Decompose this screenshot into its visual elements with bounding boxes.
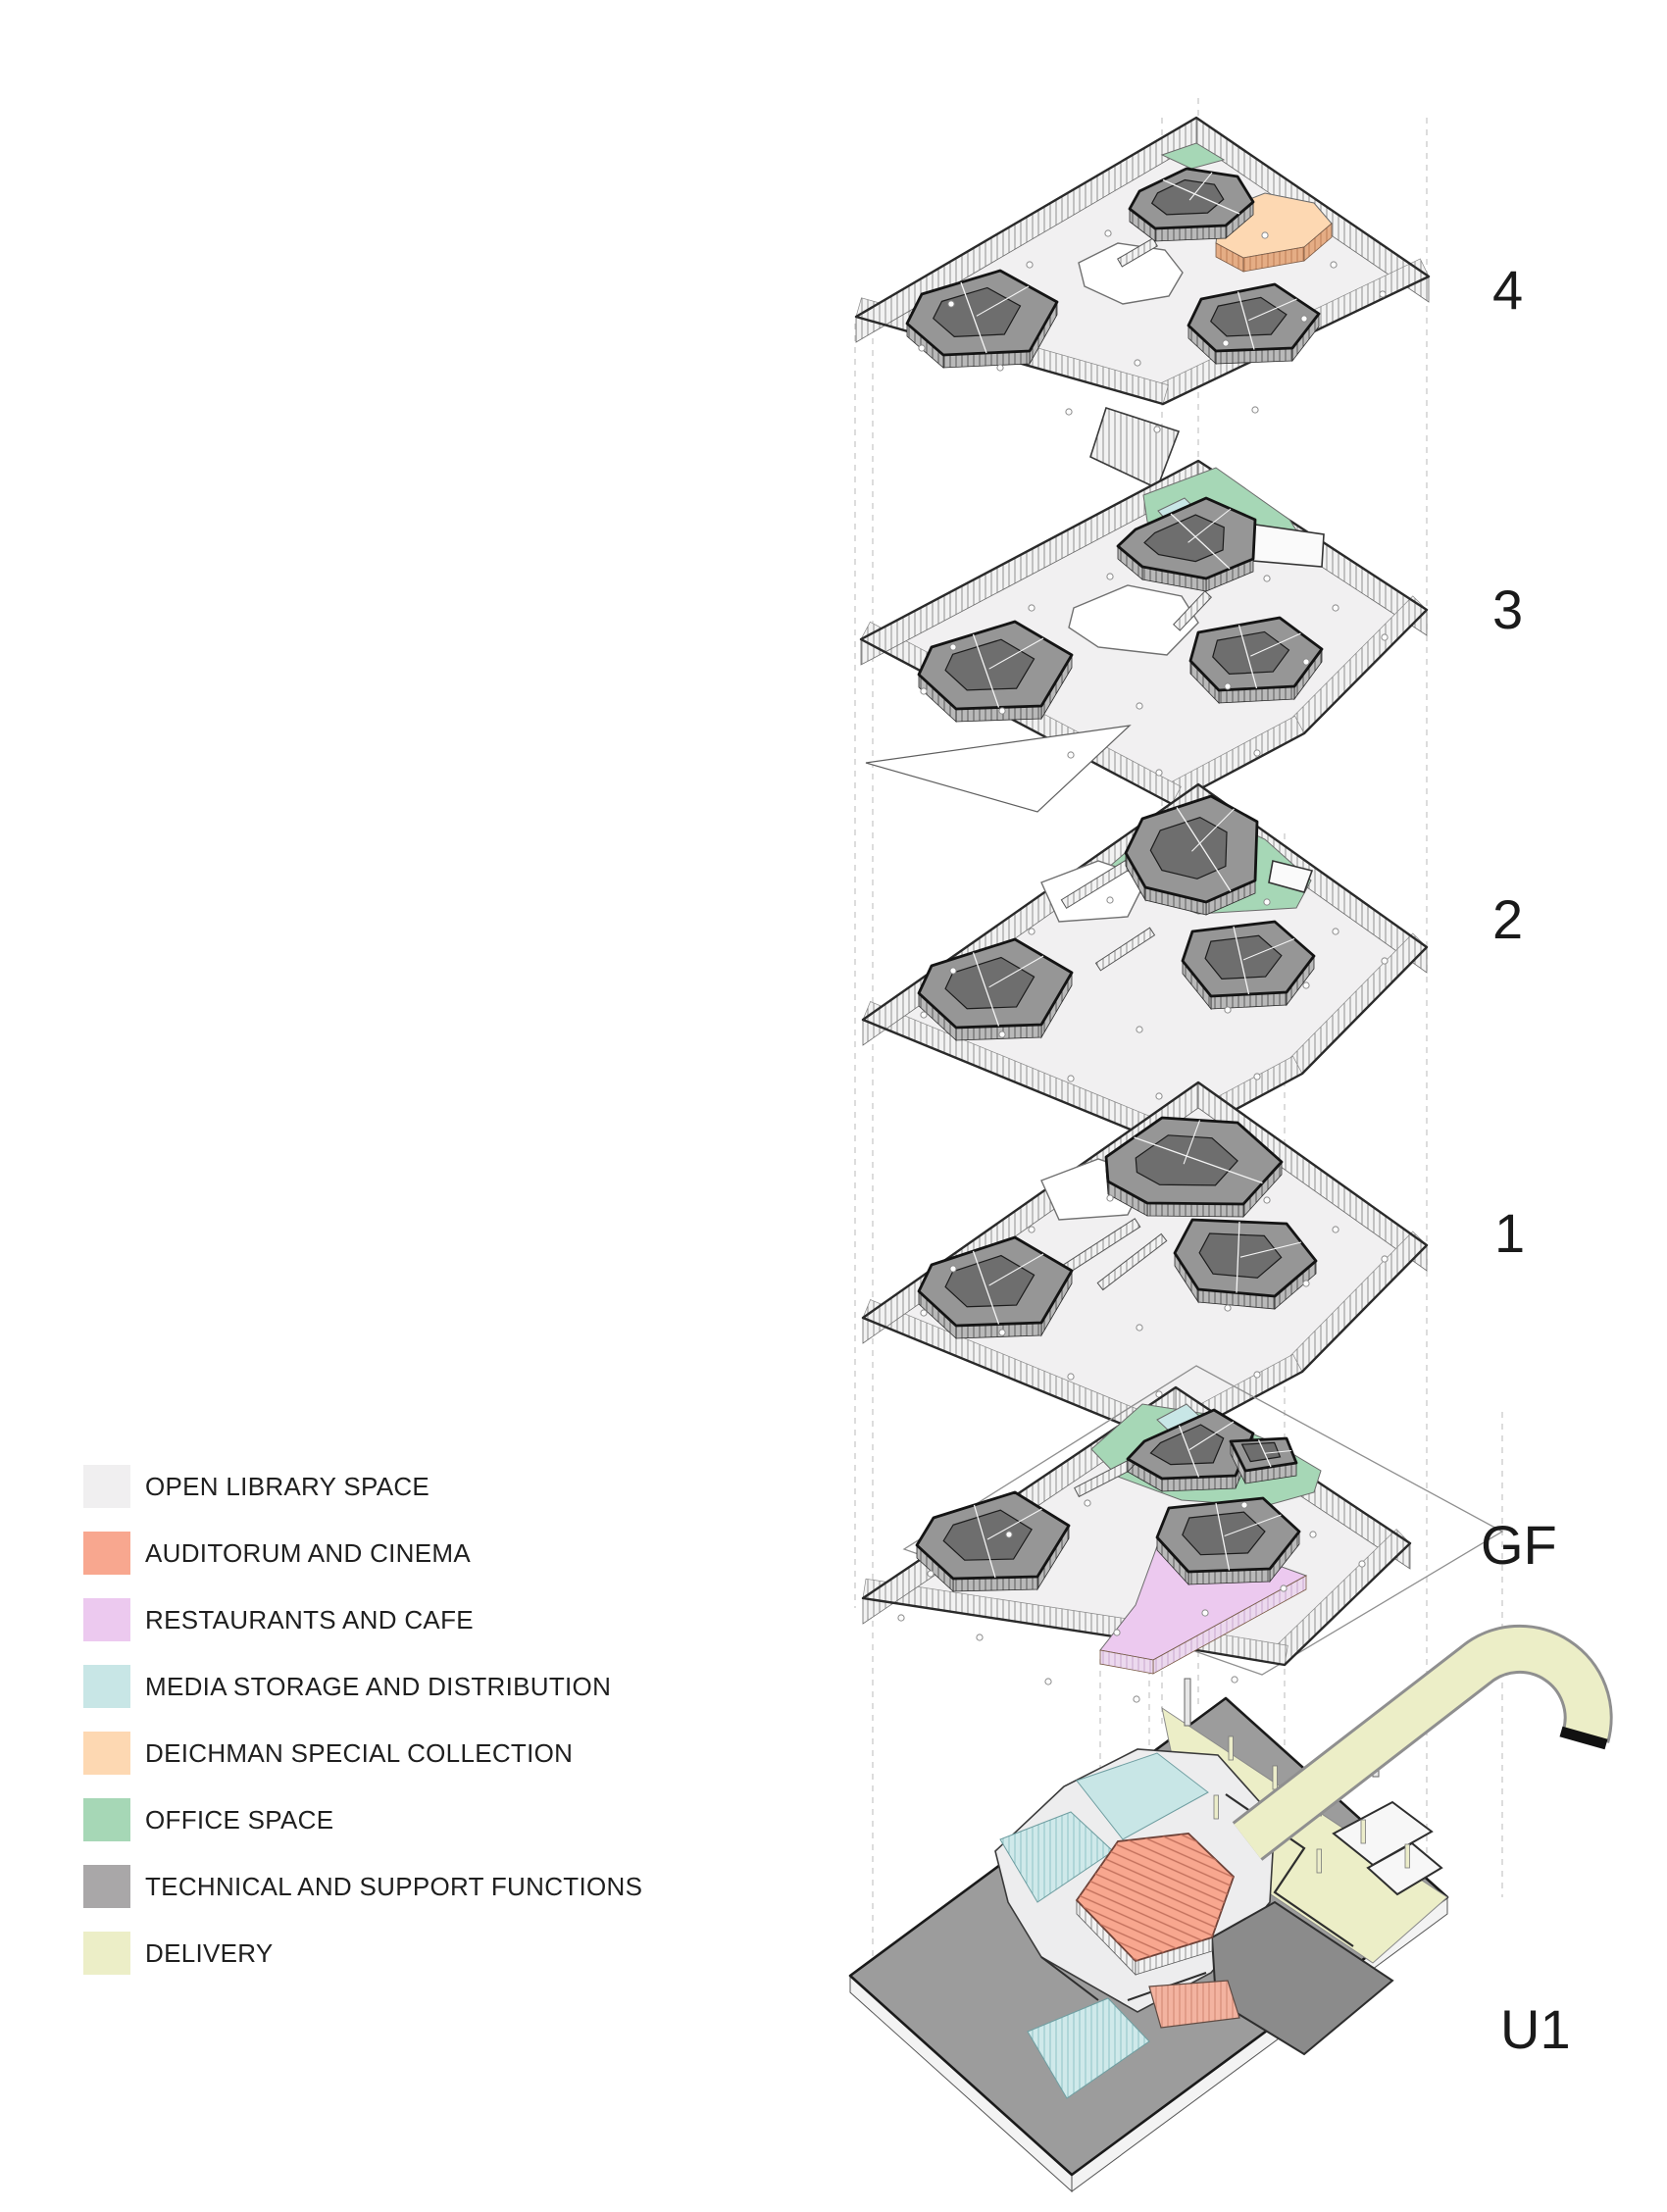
legend-item-restaurants: RESTAURANTS AND CAFE (83, 1598, 642, 1641)
floor-plate-2 (863, 784, 1427, 1145)
legend-swatch-delivery (83, 1932, 130, 1975)
floor-plate-1 (863, 1082, 1427, 1443)
exploded-axonometric-diagram: OPEN LIBRARY SPACEAUDITORUM AND CINEMARE… (0, 0, 1667, 2212)
floor-plate-3 (861, 461, 1427, 812)
legend-label: OFFICE SPACE (145, 1805, 333, 1835)
floor-label-GF: GF (1481, 1518, 1557, 1573)
legend-label: TECHNICAL AND SUPPORT FUNCTIONS (145, 1872, 642, 1902)
legend-swatch-technical (83, 1865, 130, 1908)
floor-label-U1: U1 (1500, 2002, 1571, 2057)
legend-label: AUDITORUM AND CINEMA (145, 1538, 471, 1569)
legend-label: DEICHMAN SPECIAL COLLECTION (145, 1738, 573, 1769)
legend-item-delivery: DELIVERY (83, 1932, 642, 1975)
legend: OPEN LIBRARY SPACEAUDITORUM AND CINEMARE… (83, 1465, 642, 1998)
legend-item-technical: TECHNICAL AND SUPPORT FUNCTIONS (83, 1865, 642, 1908)
legend-item-open: OPEN LIBRARY SPACE (83, 1465, 642, 1508)
floor-plate-GF (863, 1366, 1502, 1702)
legend-swatch-office (83, 1798, 130, 1841)
legend-label: OPEN LIBRARY SPACE (145, 1472, 429, 1502)
legend-item-office: OFFICE SPACE (83, 1798, 642, 1841)
legend-swatch-media (83, 1665, 130, 1708)
legend-swatch-deichman (83, 1732, 130, 1775)
legend-item-deichman: DEICHMAN SPECIAL COLLECTION (83, 1732, 642, 1775)
floor-label-3: 3 (1492, 582, 1523, 637)
legend-item-auditorium: AUDITORUM AND CINEMA (83, 1532, 642, 1575)
floor-label-2: 2 (1492, 892, 1523, 947)
legend-swatch-auditorium (83, 1532, 130, 1575)
legend-swatch-open (83, 1465, 130, 1508)
floor-label-4: 4 (1492, 263, 1523, 318)
legend-swatch-restaurants (83, 1598, 130, 1641)
legend-item-media: MEDIA STORAGE AND DISTRIBUTION (83, 1665, 642, 1708)
legend-label: MEDIA STORAGE AND DISTRIBUTION (145, 1672, 611, 1702)
legend-label: RESTAURANTS AND CAFE (145, 1605, 474, 1635)
floor-label-1: 1 (1494, 1206, 1525, 1261)
floor-plate-4 (856, 118, 1429, 488)
legend-label: DELIVERY (145, 1938, 274, 1969)
